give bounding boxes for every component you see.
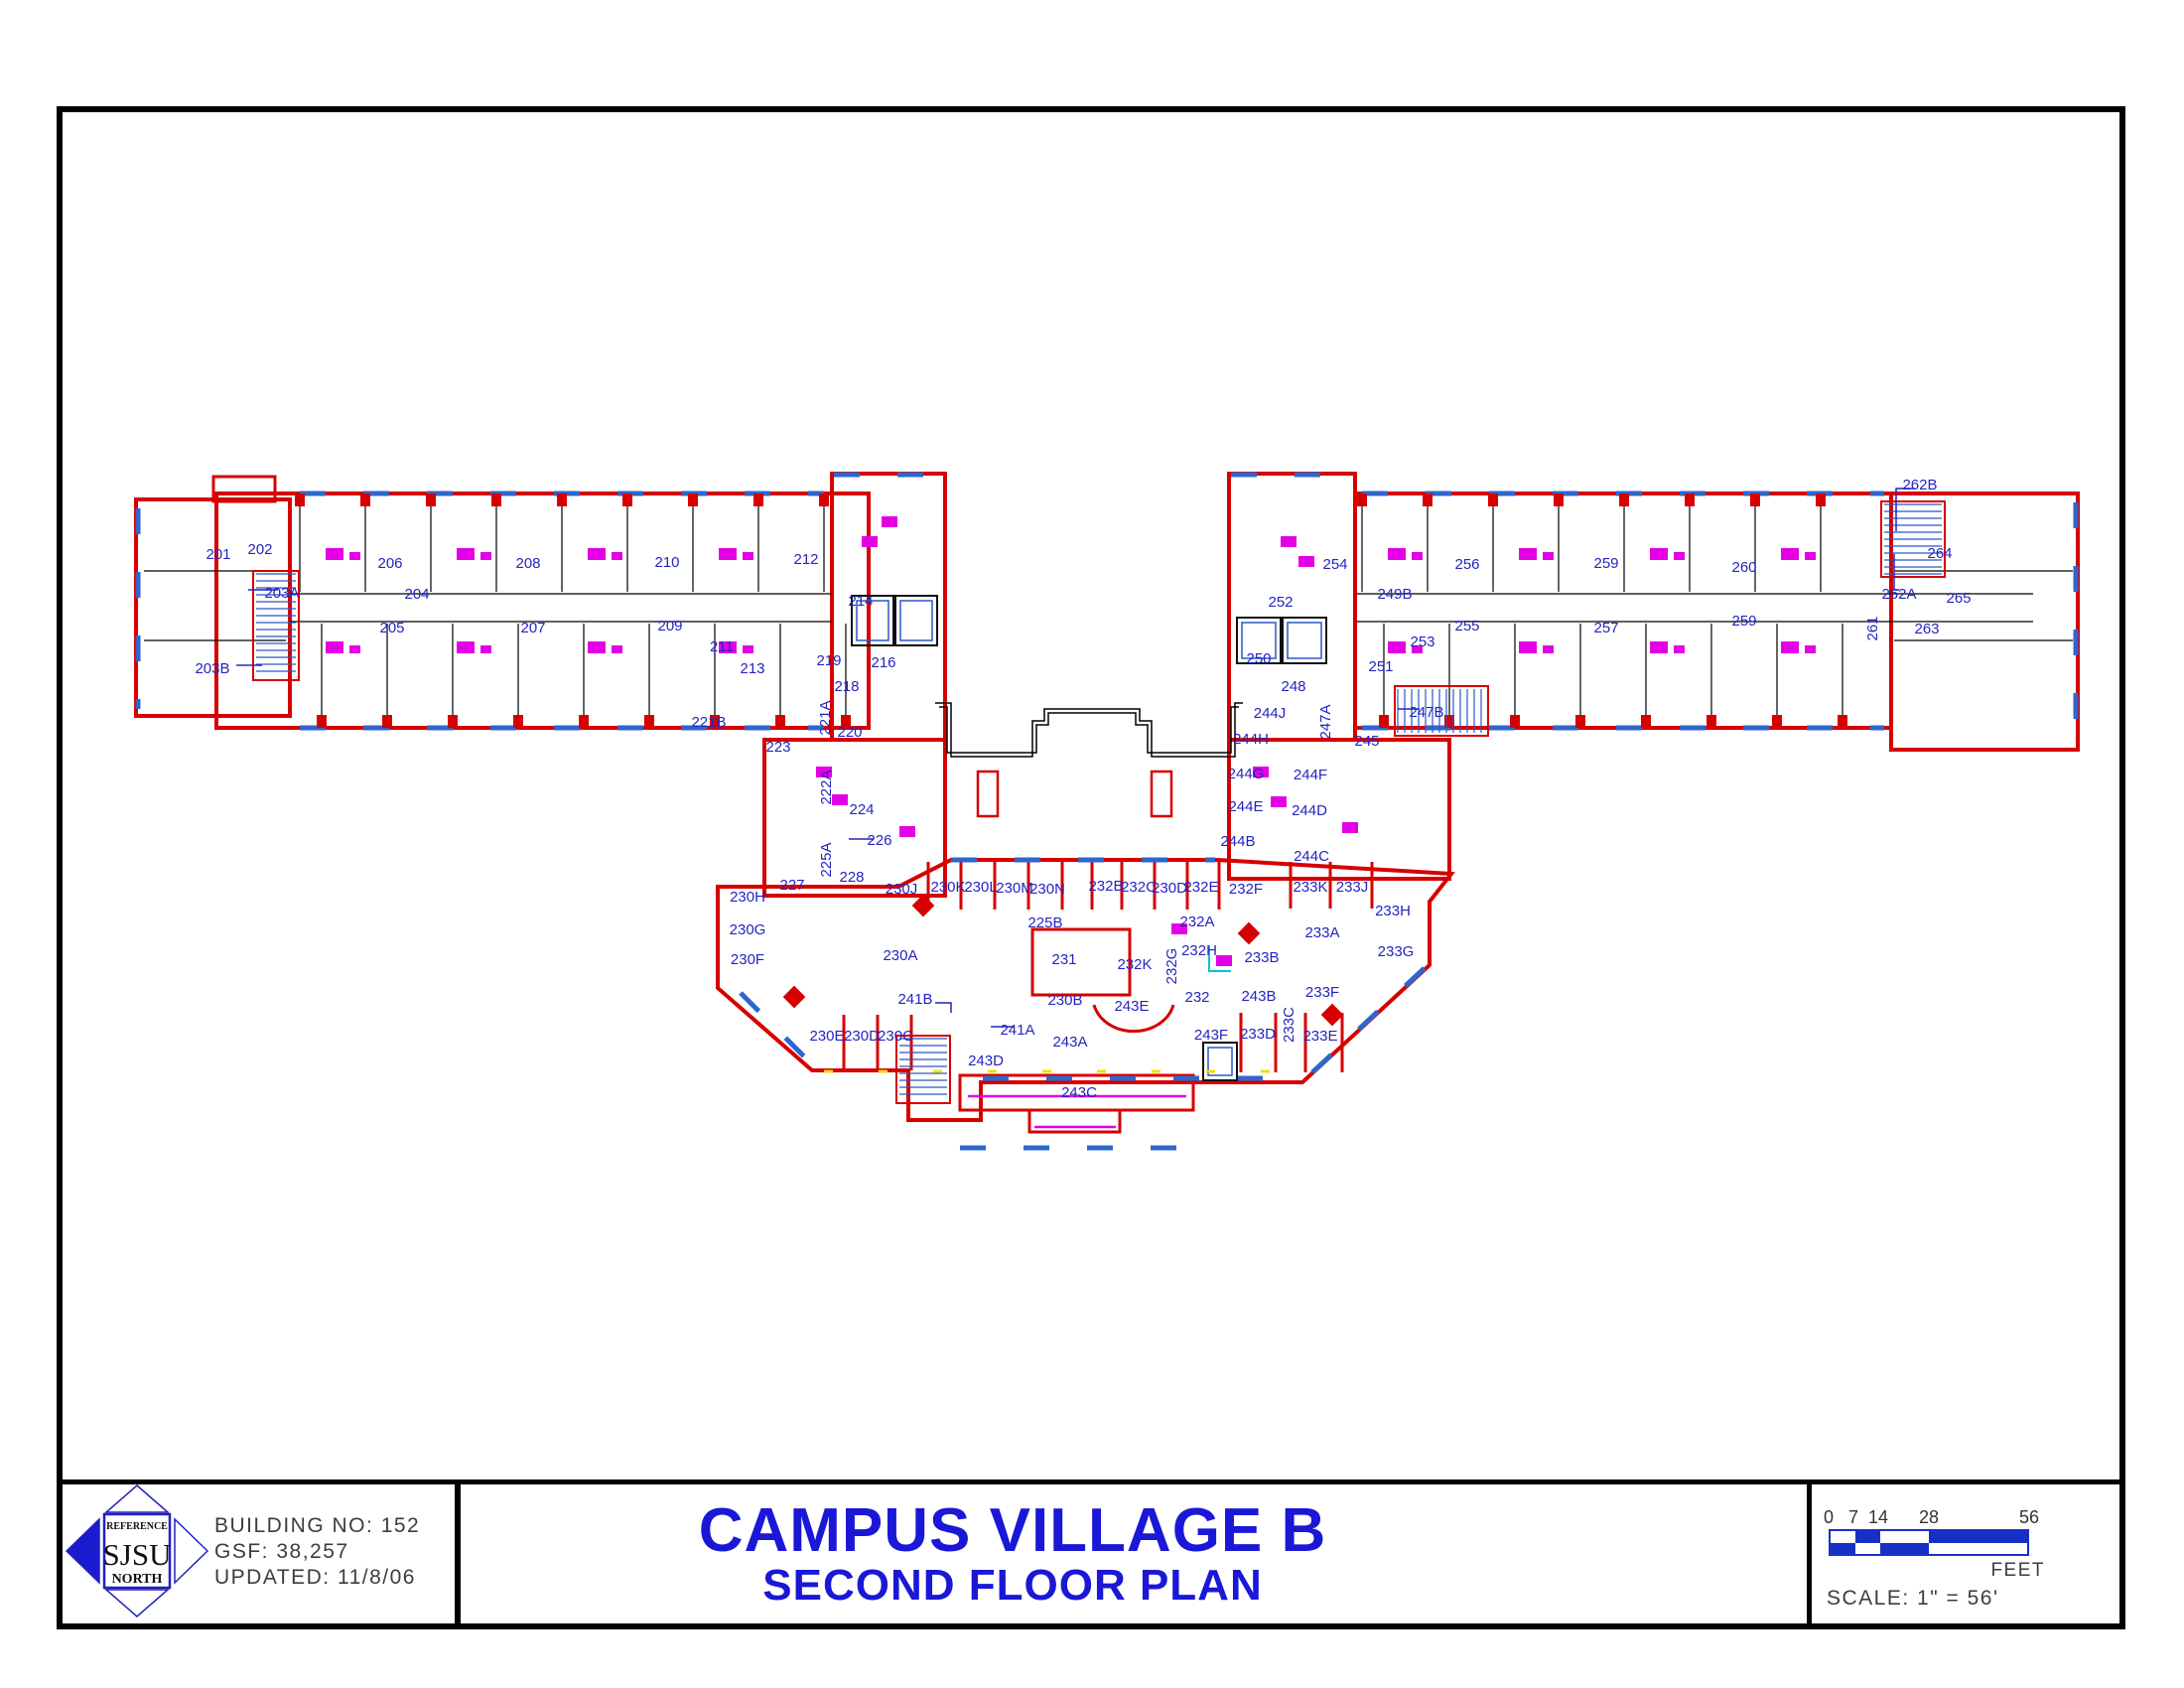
building-gsf: GSF: 38,257 [214, 1539, 420, 1565]
logo-north-text: NORTH [112, 1572, 163, 1587]
titleblock-divider-right [1807, 1481, 1812, 1627]
graphic-scale-bar [1829, 1529, 2029, 1556]
sheet: { "sheet": { "logo": { "reference": "REF… [0, 0, 2184, 1688]
logo-reference-text: REFERENCE [106, 1521, 168, 1532]
scale-seg [1855, 1531, 1880, 1543]
scale-seg [1855, 1543, 1880, 1555]
sheet-border [57, 106, 2125, 1629]
scale-tick-7: 7 [1848, 1507, 1858, 1528]
logo-triangle-south [106, 1590, 168, 1617]
sjsu-reference-logo: REFERENCE SJSU NORTH [62, 1481, 212, 1626]
scale-seg [1880, 1531, 1930, 1543]
logo-triangle-east [175, 1519, 207, 1583]
scale-seg [1929, 1531, 2027, 1543]
logo-sjsu-text: SJSU [103, 1537, 172, 1572]
building-info: BUILDING NO: 152 GSF: 38,257 UPDATED: 11… [214, 1513, 420, 1591]
scale-seg [1880, 1543, 1930, 1555]
logo-triangle-west [67, 1519, 99, 1583]
scale-seg [1929, 1543, 2027, 1555]
building-no: BUILDING NO: 152 [214, 1513, 420, 1539]
scale-seg [1831, 1531, 1855, 1543]
scale-unit-label: FEET [1971, 1560, 2045, 1582]
scale-tick-28: 28 [1919, 1507, 1939, 1528]
scale-tick-0: 0 [1824, 1507, 1834, 1528]
sheet-subtitle: SECOND FLOOR PLAN [536, 1561, 1489, 1611]
titleblock-divider-left [455, 1481, 461, 1627]
scale-seg [1831, 1543, 1855, 1555]
scale-tick-14: 14 [1868, 1507, 1888, 1528]
sheet-title: CAMPUS VILLAGE B [536, 1495, 1489, 1566]
logo-triangle-north [106, 1485, 168, 1512]
scale-tick-56: 56 [2019, 1507, 2039, 1528]
building-updated: UPDATED: 11/8/06 [214, 1565, 420, 1591]
scale-text: SCALE: 1" = 56' [1827, 1587, 1998, 1611]
